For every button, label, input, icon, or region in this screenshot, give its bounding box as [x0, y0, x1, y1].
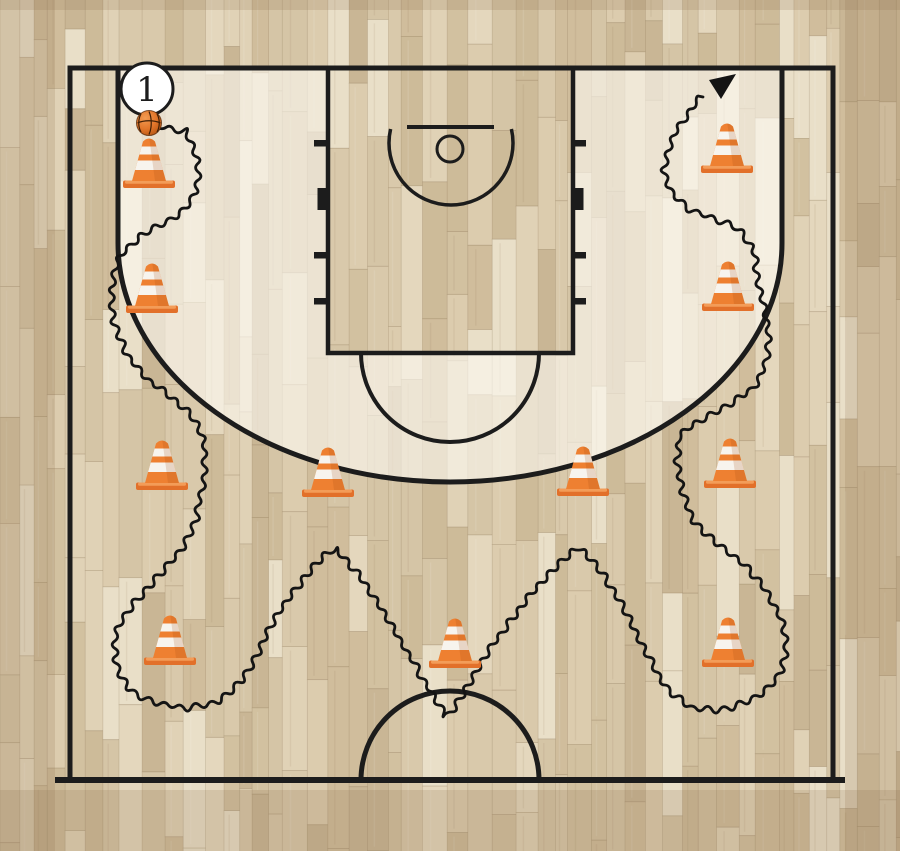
floor-plank — [85, 570, 103, 730]
floor-plank — [538, 533, 556, 739]
floor-plank — [755, 550, 780, 754]
floor-plank — [492, 544, 517, 690]
floor-plank — [252, 0, 269, 73]
floor-plank — [794, 325, 810, 457]
player-number: 1 — [136, 70, 158, 110]
floor-plank — [794, 69, 810, 138]
floor-plank — [85, 462, 103, 571]
floor-plank — [224, 475, 240, 598]
floor-plank — [282, 647, 307, 771]
floor-plank — [183, 509, 206, 620]
floor-plank — [755, 451, 780, 550]
floor-plank — [516, 540, 539, 742]
floor-plank — [328, 507, 350, 667]
floor-plank — [698, 407, 717, 586]
floor-plank — [224, 598, 240, 736]
floor-plank — [556, 674, 569, 775]
floor-plank — [663, 593, 684, 671]
floor-plank — [556, 201, 569, 356]
floor-plank — [206, 626, 225, 737]
floor-plank — [780, 456, 795, 610]
floor-plank — [85, 125, 103, 319]
floor-plank — [556, 0, 569, 121]
floor-plank — [103, 393, 120, 587]
floor-plank — [809, 445, 827, 574]
floor-plank — [717, 0, 740, 68]
floor-plank — [645, 583, 663, 681]
floor-plank — [240, 544, 253, 712]
floor-plank — [809, 36, 827, 201]
floor-plank — [206, 435, 225, 627]
floor-plank — [388, 476, 401, 630]
floor-plank — [809, 312, 827, 446]
floor-plank — [401, 576, 423, 659]
floor-plank — [809, 574, 827, 670]
floor-plank — [794, 457, 810, 596]
floor-plank — [368, 137, 389, 267]
floor-plank — [85, 0, 103, 125]
floor-plank — [794, 138, 810, 216]
floor-plank — [516, 80, 539, 206]
floor-plank — [349, 0, 368, 83]
floor-plank — [252, 517, 269, 708]
floor-plank — [142, 593, 166, 772]
floor-plank — [780, 681, 795, 777]
basketball-icon[interactable] — [137, 111, 162, 136]
floor-plank — [282, 512, 307, 647]
floor-plank — [401, 36, 423, 186]
floor-plank — [206, 0, 225, 75]
floor-plank — [516, 206, 539, 354]
floor-plank — [568, 591, 593, 745]
court-diagram: 1 — [0, 0, 900, 851]
floor-plank — [307, 527, 328, 680]
floor-plank — [809, 200, 827, 311]
floor-plank — [401, 186, 423, 380]
floor-plank — [468, 245, 493, 329]
floor-plank — [328, 148, 350, 345]
floor-plank — [538, 0, 556, 117]
floor-plank — [809, 670, 827, 766]
floor-plank — [794, 596, 810, 730]
floor-plank — [780, 303, 795, 455]
floor-plank — [607, 494, 626, 585]
floor-plank — [269, 560, 283, 658]
floor-plank — [794, 730, 810, 794]
floor-plank — [349, 632, 368, 787]
player-1-marker[interactable]: 1 — [121, 63, 173, 115]
floor-plank — [388, 630, 401, 752]
floor-plank — [794, 0, 810, 69]
floor-plank — [388, 188, 401, 327]
floor-plank — [85, 320, 103, 462]
floor-plank — [592, 544, 608, 721]
floor-plank — [349, 83, 368, 269]
floor-plank — [328, 0, 350, 148]
floor-plank — [422, 559, 447, 645]
floor-plank — [683, 593, 699, 766]
floor-plank — [252, 445, 269, 517]
drill-diagram-canvas: 1 — [0, 0, 900, 851]
floor-plank — [794, 216, 810, 325]
floor-plank — [538, 117, 556, 249]
floor-plank — [556, 121, 569, 201]
floor-plank — [368, 19, 389, 136]
floor-plank — [492, 0, 517, 131]
floor-plank — [625, 483, 646, 645]
floor-plank — [468, 44, 493, 245]
floor-plank — [447, 232, 468, 295]
floor-plank — [422, 0, 447, 182]
floor-plank — [556, 535, 569, 674]
floor-plank — [269, 493, 283, 560]
floor-plank — [119, 578, 143, 705]
